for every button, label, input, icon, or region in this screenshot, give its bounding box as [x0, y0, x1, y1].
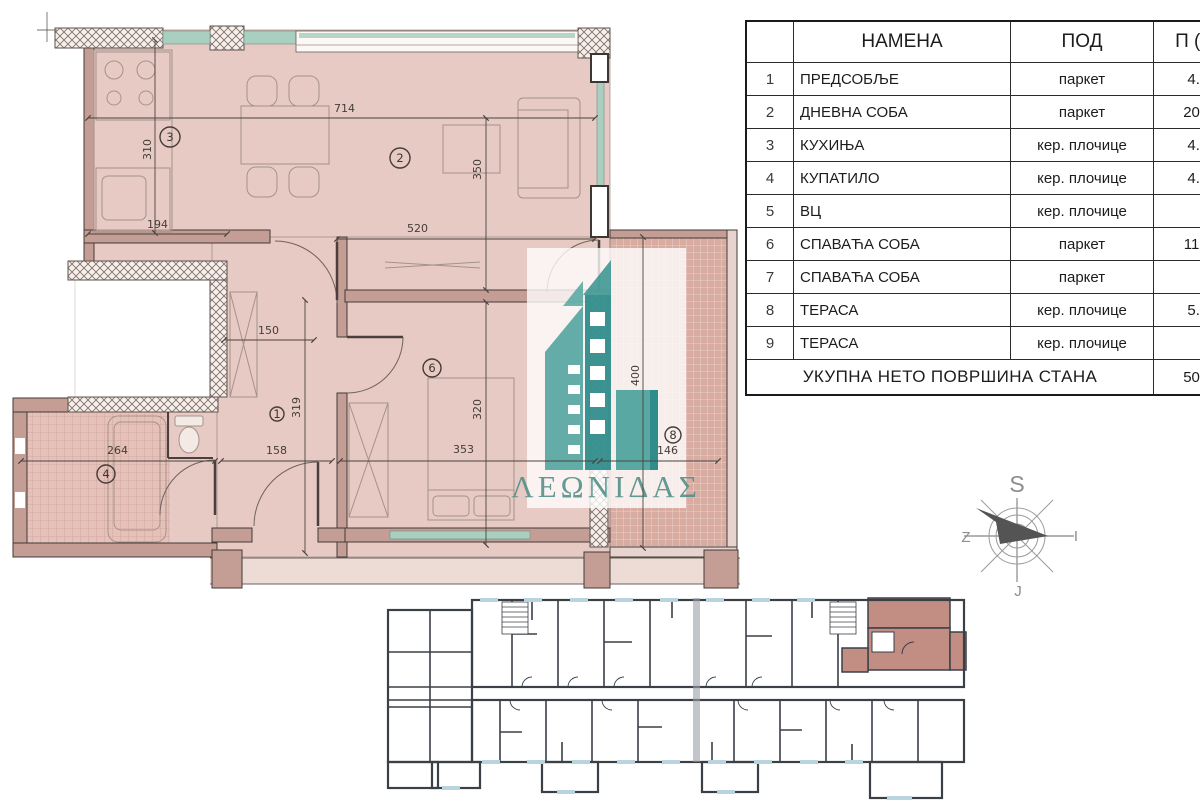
room-terrace-label: 8	[669, 428, 676, 442]
porch-strip	[210, 558, 740, 584]
table-row: 9 ТЕРАСА кер. плочице /	[746, 327, 1200, 360]
void-notch	[75, 280, 210, 397]
logo-watermark: ΛΕΩΝΙΔΑΣ	[511, 248, 701, 508]
terrace-door-frame	[591, 186, 608, 237]
dim-353: 353	[453, 443, 474, 456]
logo-text: ΛΕΩΝΙΔΑΣ	[511, 469, 701, 504]
compass-south: J	[1014, 583, 1022, 600]
dim-714: 714	[334, 102, 355, 115]
header-blank	[746, 21, 794, 63]
table-row: 3 КУХИЊА кер. плочице 4.00	[746, 129, 1200, 162]
room-bath-label: 4	[102, 467, 109, 481]
key-plan-doors	[510, 677, 894, 710]
header-name: НАМЕНА	[794, 21, 1011, 63]
dim-350: 350	[471, 159, 484, 180]
compass-needle	[976, 508, 1048, 544]
frame	[591, 54, 608, 82]
room-bedroom-label: 6	[428, 361, 435, 375]
highlighted-unit	[842, 598, 966, 672]
dim-320: 320	[471, 399, 484, 420]
expansion-joint	[693, 598, 700, 762]
dim-150: 150	[258, 324, 279, 337]
toilet-tank	[175, 416, 203, 426]
column	[584, 552, 610, 588]
room-hall-label: 1	[273, 407, 280, 421]
stairs	[502, 602, 856, 634]
column	[212, 550, 242, 588]
table-row: 7 СПАВАЋА СОБА паркет /	[746, 261, 1200, 294]
compass-west: Z	[961, 529, 970, 546]
room-kitchen-label: 3	[166, 130, 173, 144]
building-key-plan	[372, 592, 980, 806]
table-row: 8 ТЕРАСА кер. плочице 5.50	[746, 294, 1200, 327]
dim-520: 520	[407, 222, 428, 235]
window	[244, 31, 296, 44]
total-value: 50.00	[1154, 360, 1200, 396]
header-floor: ПОД	[1011, 21, 1154, 63]
dim-319: 319	[290, 397, 303, 418]
dim-194: 194	[147, 218, 168, 231]
window	[163, 31, 210, 44]
table-row: 4 КУПАТИЛО кер. плочице 4.20	[746, 162, 1200, 195]
toilet	[179, 427, 199, 453]
room-living-label: 2	[396, 151, 403, 165]
key-plan-corridor	[388, 687, 964, 700]
table-header-row: НАМЕНА ПОД П (m²)	[746, 21, 1200, 63]
dim-146: 146	[657, 444, 678, 457]
compass-north: S	[1009, 471, 1024, 497]
table-row: 1 ПРЕДСОБЉЕ паркет 4.80	[746, 63, 1200, 96]
dim-158: 158	[266, 444, 287, 457]
dim-264: 264	[107, 444, 128, 457]
room-areas-table: НАМЕНА ПОД П (m²) 1 ПРЕДСОБЉЕ паркет 4.8…	[745, 20, 1200, 396]
dim-400: 400	[629, 365, 642, 386]
main-floor-plan: ΛΕΩΝΙΔΑΣ 714 310 194 520 350 150 319 264…	[0, 0, 760, 600]
column	[704, 550, 738, 588]
drawing-sheet: ΛΕΩΝΙΔΑΣ 714 310 194 520 350 150 319 264…	[0, 0, 1200, 806]
total-label: УКУПНА НЕТО ПОВРШИНА СТАНА	[746, 360, 1154, 396]
table-total-row: УКУПНА НЕТО ПОВРШИНА СТАНА 50.00	[746, 360, 1200, 396]
table-row: 5 ВЦ кер. плочице /	[746, 195, 1200, 228]
bathroom-tiles	[27, 412, 170, 543]
table-row: 2 ДНЕВНА СОБА паркет 20.10	[746, 96, 1200, 129]
compass-east: I	[1074, 528, 1078, 545]
header-area: П (m²)	[1154, 21, 1200, 63]
window	[390, 531, 530, 539]
table-row: 6 СПАВАЋА СОБА паркет 11.40	[746, 228, 1200, 261]
dim-310: 310	[141, 139, 154, 160]
window	[597, 82, 604, 186]
